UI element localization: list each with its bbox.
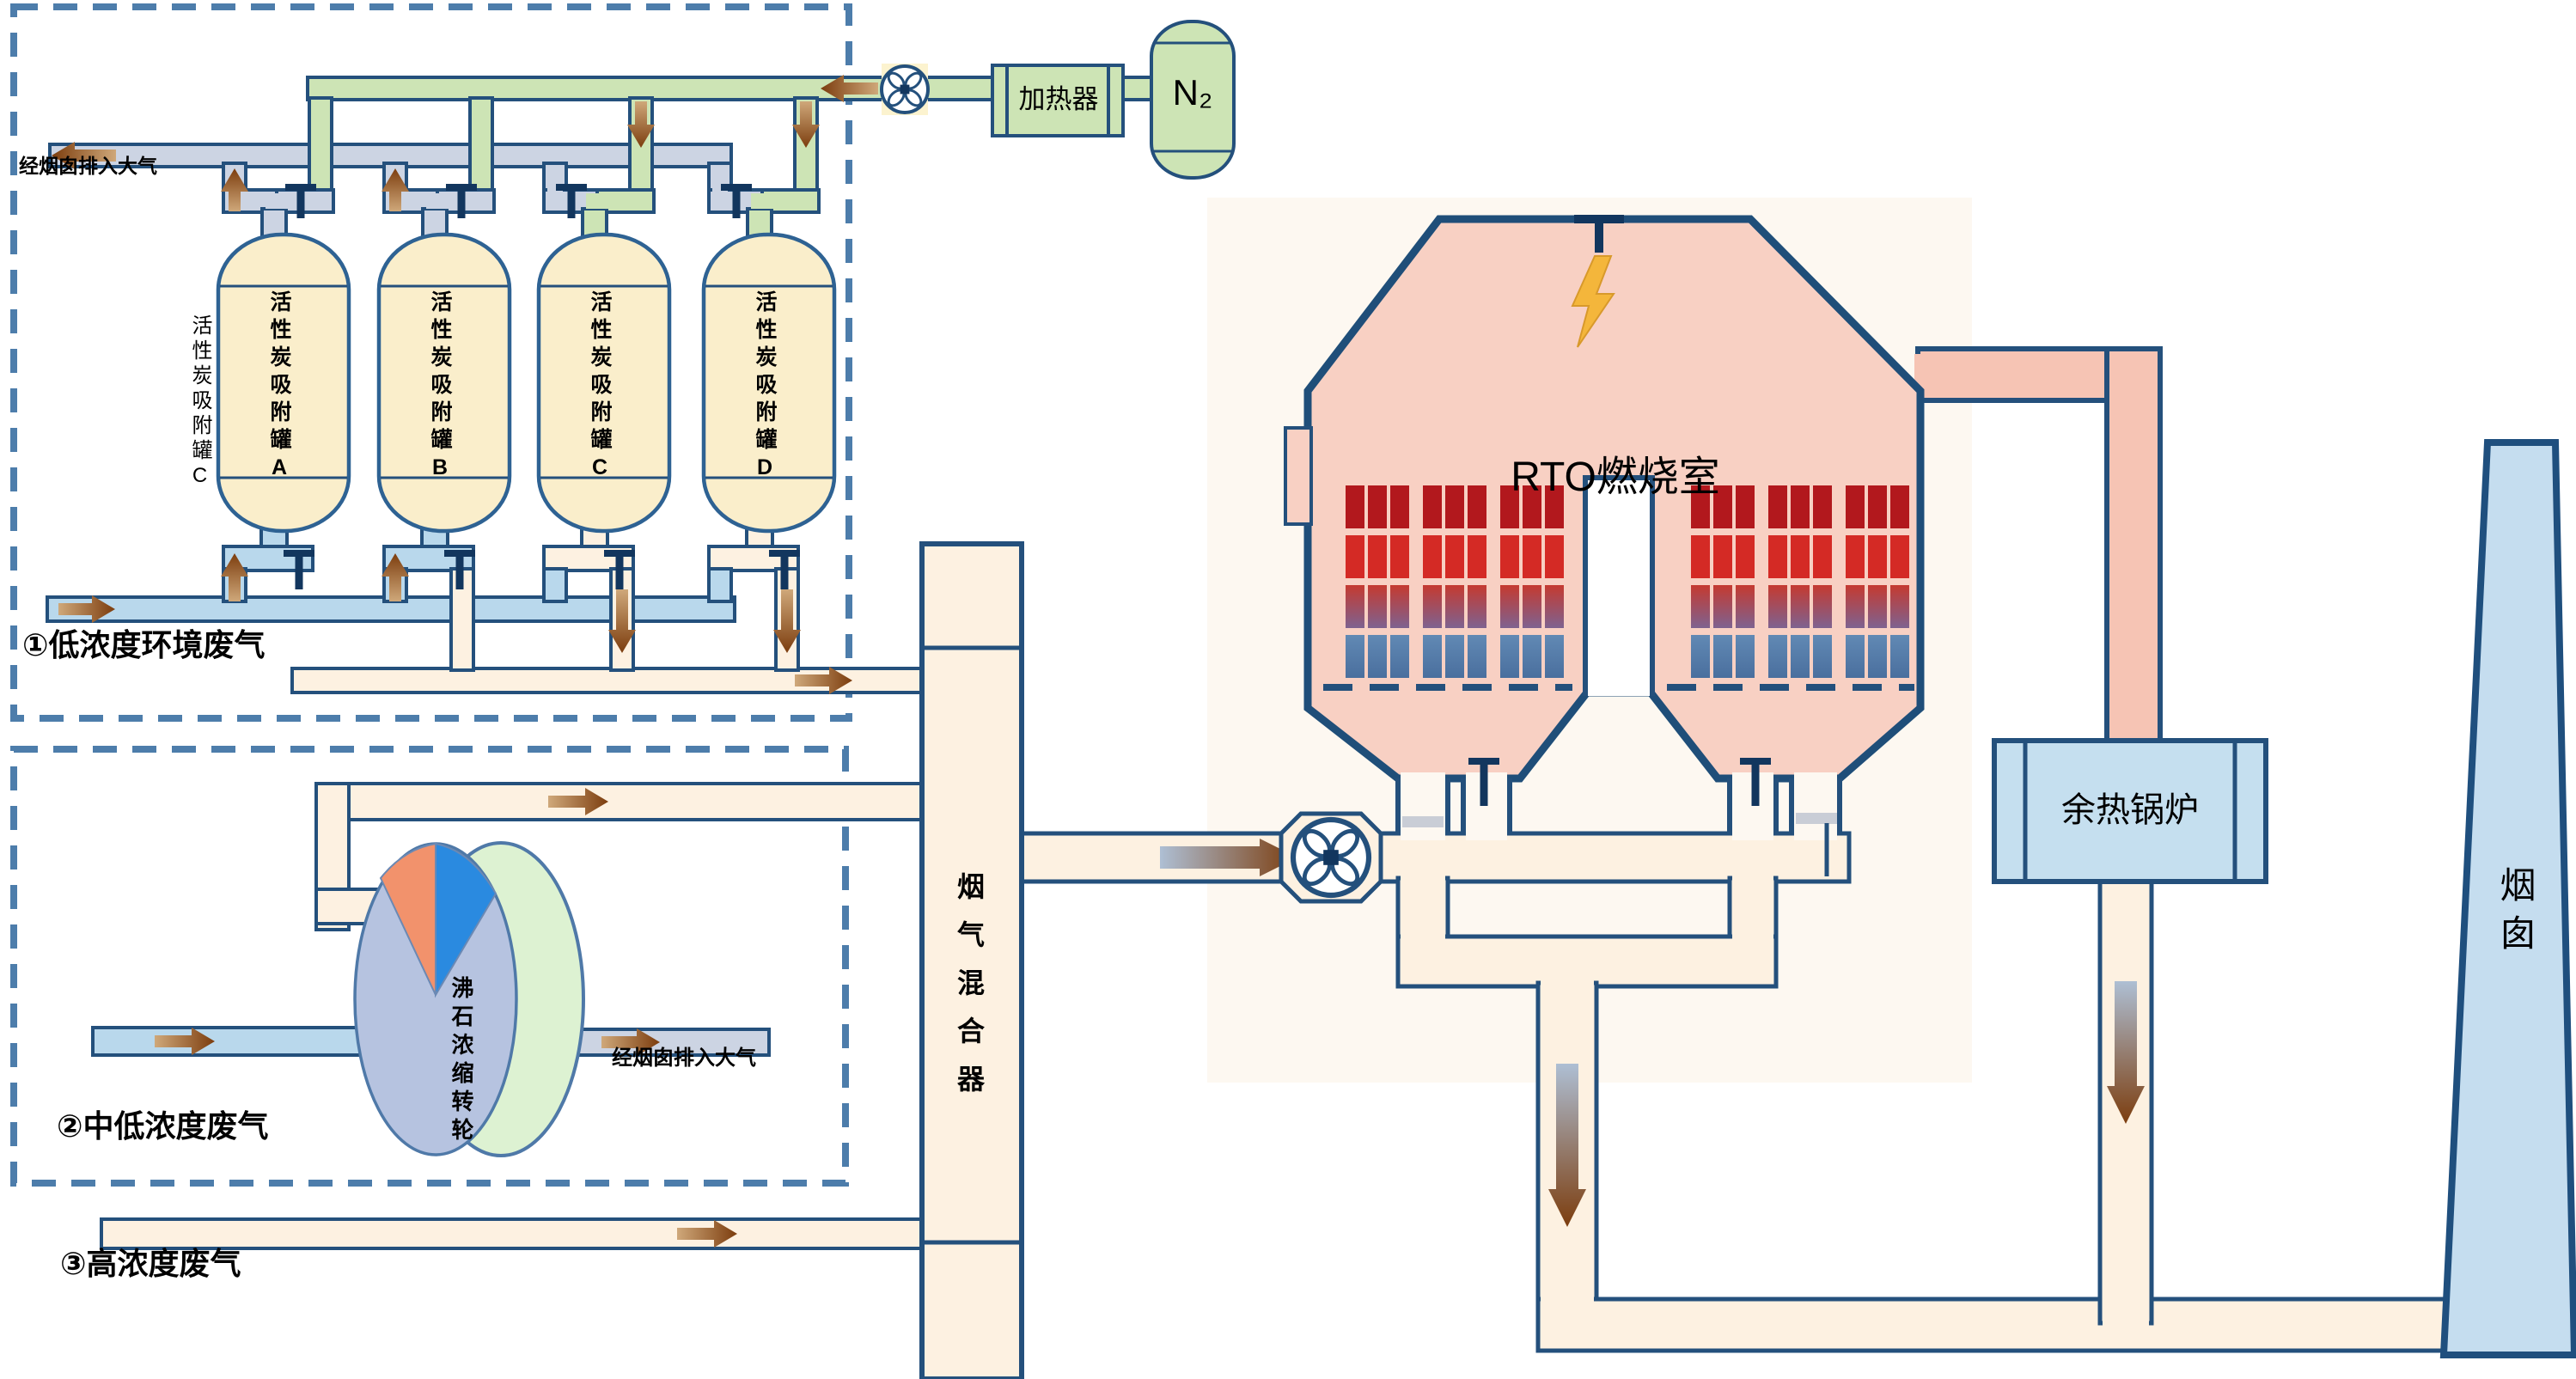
pipe-joint xyxy=(1732,875,1773,885)
ceramic-bed-block xyxy=(1468,635,1486,678)
stack-feed-pipe xyxy=(1538,1299,2462,1351)
wastegas-branch xyxy=(709,569,731,601)
ceramic-bed-block xyxy=(1868,485,1887,528)
ceramic-bed-block xyxy=(1736,635,1755,678)
ceramic-bed-block xyxy=(1791,535,1810,578)
high-concentration-stream-label: ③高浓度废气 xyxy=(60,1246,241,1281)
pipe-joint xyxy=(1794,830,1837,840)
pipe-joint xyxy=(1401,772,1445,783)
ceramic-bed-block xyxy=(1346,535,1364,578)
pipe-joint xyxy=(266,193,312,209)
flue-gas-mixer-label: 烟气混合器 xyxy=(955,872,983,1113)
diagram-artwork xyxy=(0,0,2576,1379)
ceramic-bed-block xyxy=(1791,635,1810,678)
ceramic-bed-block xyxy=(1846,635,1865,678)
tank-c-label: 活性炭吸附罐C xyxy=(589,290,610,485)
side-tank-label: 活性炭吸附罐C xyxy=(189,314,210,491)
pipe-joint xyxy=(2103,1313,2149,1327)
rto-center-slot xyxy=(1585,478,1652,696)
ceramic-bed-block xyxy=(1813,535,1832,578)
wheel-desorption-pipe xyxy=(316,784,931,820)
high-concentration-pipe xyxy=(101,1219,931,1248)
ceramic-bed-block xyxy=(1468,585,1486,628)
ceramic-bed-block xyxy=(1736,585,1755,628)
ceramic-bed-block xyxy=(1523,635,1541,678)
ceramic-bed-block xyxy=(1691,535,1710,578)
valve-icon xyxy=(458,184,466,218)
rto-chamber-label: RTO燃烧室 xyxy=(1433,454,1798,501)
pipe-joint xyxy=(1401,830,1445,840)
ceramic-bed-block xyxy=(1890,635,1909,678)
heater-label: 加热器 xyxy=(994,84,1123,115)
valve-icon xyxy=(456,550,464,589)
ceramic-bed-block xyxy=(1500,635,1519,678)
tank-b-label: 活性炭吸附罐B xyxy=(429,290,450,485)
pipe-joint xyxy=(1732,830,1773,840)
box2-atmosphere-label: 经烟囱排入大气 xyxy=(612,1046,756,1071)
loop-leg xyxy=(1398,878,1448,940)
stack-label: 烟囱 xyxy=(2497,866,2533,962)
pipe-joint xyxy=(1794,772,1837,783)
pipe-joint xyxy=(1541,979,1594,990)
ceramic-bed-block xyxy=(1346,485,1364,528)
ceramic-bed-block xyxy=(1768,585,1787,628)
ceramic-bed-block xyxy=(1523,585,1541,628)
n2-branch xyxy=(309,98,332,192)
low-concentration-stream-label: ①低浓度环境废气 xyxy=(22,627,265,662)
ceramic-bed-block xyxy=(1445,635,1464,678)
pipe-joint xyxy=(1466,830,1507,840)
ceramic-bed-block xyxy=(1423,635,1442,678)
valve-icon xyxy=(616,550,624,589)
rto-manway xyxy=(1285,428,1311,524)
ceramic-bed-block xyxy=(1890,535,1909,578)
tank-a-label: 活性炭吸附罐A xyxy=(268,290,290,485)
pipe-joint xyxy=(1401,875,1445,885)
ceramic-bed-block xyxy=(1346,635,1364,678)
ceramic-bed-block xyxy=(1468,535,1486,578)
fan-hub xyxy=(900,85,910,95)
ceramic-bed-block xyxy=(1768,635,1787,678)
box1-atmosphere-label: 经烟囱排入大气 xyxy=(19,155,157,177)
pipe-joint xyxy=(319,892,346,921)
ceramic-bed-block xyxy=(1390,485,1409,528)
nitrogen-label: N₂ xyxy=(1151,72,1234,113)
valve-icon xyxy=(297,184,305,218)
ceramic-bed-block xyxy=(1791,585,1810,628)
ceramic-bed-block xyxy=(1713,585,1732,628)
ceramic-bed-block xyxy=(1500,585,1519,628)
ceramic-bed-block xyxy=(1846,585,1865,628)
valve-icon xyxy=(568,184,576,218)
loop-leg xyxy=(1730,878,1776,940)
valve-icon xyxy=(781,550,789,589)
ceramic-bed-block xyxy=(1500,535,1519,578)
pipe-joint xyxy=(586,193,632,209)
ceramic-bed-block xyxy=(1768,535,1787,578)
ceramic-bed-block xyxy=(1368,535,1387,578)
ceramic-bed-block xyxy=(1868,535,1887,578)
ceramic-bed-block xyxy=(1423,535,1442,578)
funnel-mark xyxy=(1402,816,1444,827)
ceramic-bed-block xyxy=(1813,485,1832,528)
ceramic-bed-block xyxy=(1813,635,1832,678)
ceramic-bed-block xyxy=(1846,535,1865,578)
valve-icon xyxy=(733,184,741,218)
pipe-joint xyxy=(426,193,473,209)
valve-icon xyxy=(1480,758,1488,806)
ceramic-bed-block xyxy=(1846,485,1865,528)
process-flow-diagram: 经烟囱排入大气 活性炭吸附罐C 活性炭吸附罐A 活性炭吸附罐B 活性炭吸附罐C … xyxy=(0,0,2576,1379)
wheel-inlet-pipe xyxy=(93,1028,369,1055)
wastegas-branch xyxy=(544,569,566,601)
ceramic-bed-block xyxy=(1713,535,1732,578)
ceramic-bed-block xyxy=(1713,635,1732,678)
ceramic-bed-block xyxy=(1390,585,1409,628)
valve-icon xyxy=(1752,758,1760,806)
pipe-joint xyxy=(2109,351,2158,398)
pipe-joint xyxy=(751,193,797,209)
ceramic-bed-block xyxy=(1346,585,1364,628)
ceramic-bed-block xyxy=(1390,635,1409,678)
ceramic-bed-block xyxy=(1868,585,1887,628)
ceramic-bed-block xyxy=(1868,635,1887,678)
ceramic-bed-block xyxy=(1368,585,1387,628)
ceramic-bed-block xyxy=(1368,485,1387,528)
valve-icon xyxy=(296,550,303,589)
pipe-joint xyxy=(1401,933,1445,942)
ceramic-bed-block xyxy=(1691,635,1710,678)
ceramic-bed-block xyxy=(1445,535,1464,578)
ceramic-bed-block xyxy=(1890,585,1909,628)
tank-d-label: 活性炭吸附罐D xyxy=(754,290,775,485)
funnel-mark xyxy=(1796,813,1837,824)
pipe-joint xyxy=(1732,933,1773,942)
fan-hub xyxy=(1323,850,1339,865)
ceramic-bed-block xyxy=(1545,535,1564,578)
loop-bottom xyxy=(1398,937,1776,986)
mid-concentration-stream-label: ②中低浓度废气 xyxy=(57,1108,268,1144)
pipe-joint xyxy=(1541,1296,1594,1306)
burner-icon xyxy=(1595,222,1603,253)
ceramic-bed-block xyxy=(1390,535,1409,578)
pipe-joint xyxy=(319,787,346,852)
ceramic-bed-block xyxy=(1545,585,1564,628)
ceramic-bed-block xyxy=(1368,635,1387,678)
rto-inlet-pipe xyxy=(1016,833,1849,882)
ceramic-bed-block xyxy=(1545,635,1564,678)
ceramic-bed-block xyxy=(1445,585,1464,628)
waste-heat-boiler-label: 余热锅炉 xyxy=(1994,790,2266,830)
ceramic-bed-block xyxy=(1691,585,1710,628)
ceramic-bed-block xyxy=(1813,585,1832,628)
ceramic-bed-block xyxy=(1423,585,1442,628)
ceramic-bed-block xyxy=(1736,535,1755,578)
ceramic-bed-block xyxy=(1523,535,1541,578)
n2-branch xyxy=(470,98,492,192)
ceramic-bed-block xyxy=(1890,485,1909,528)
zeolite-wheel-label: 沸石浓缩转轮 xyxy=(450,976,473,1146)
rto-hot-gas-pipe xyxy=(2107,349,2160,744)
